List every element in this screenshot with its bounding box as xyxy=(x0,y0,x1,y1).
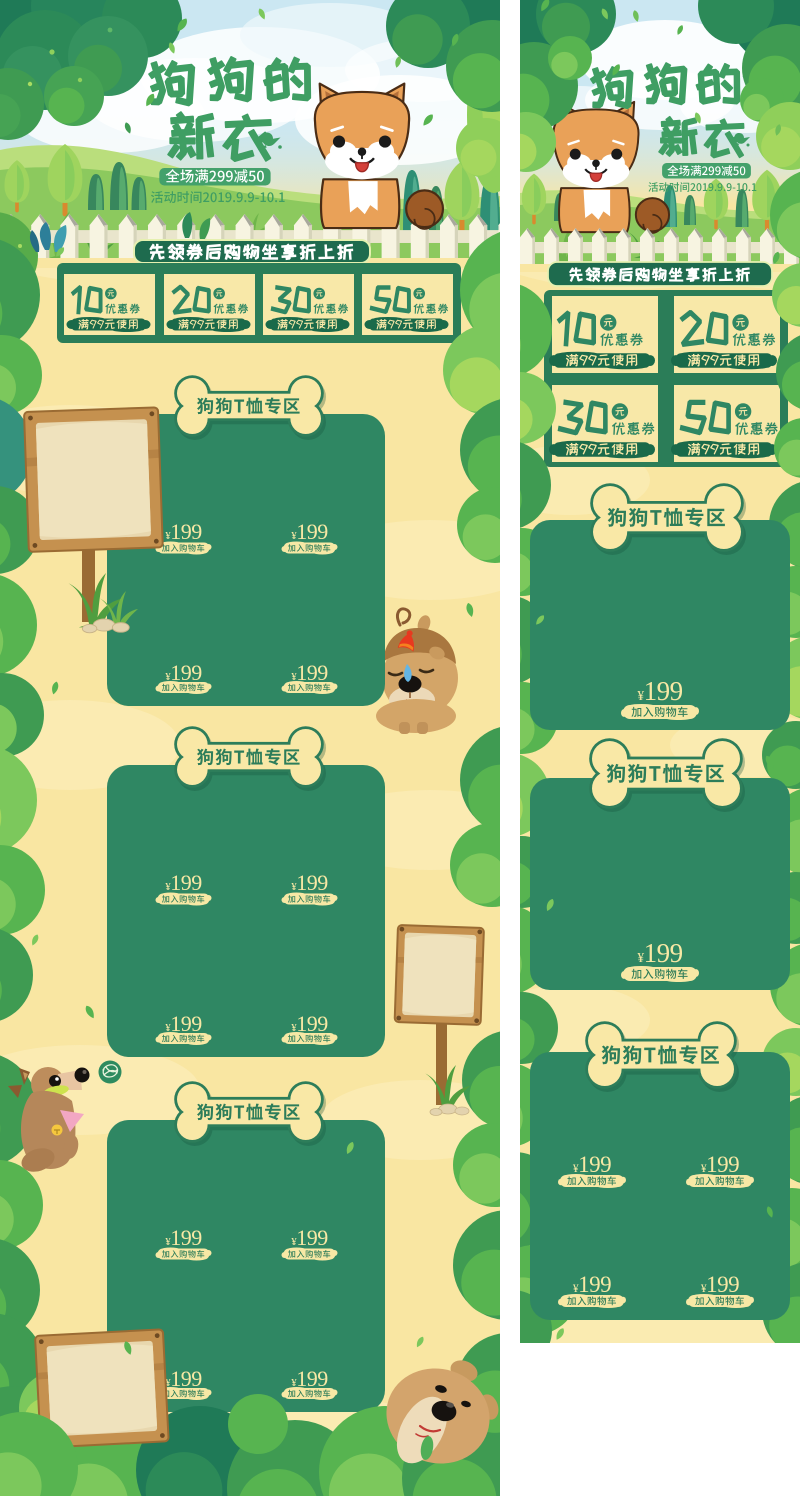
svg-text:¥199: ¥199 xyxy=(291,519,328,544)
svg-text:¥199: ¥199 xyxy=(165,1225,202,1250)
svg-text:¥199: ¥199 xyxy=(701,1272,739,1297)
svg-text:¥199: ¥199 xyxy=(637,938,682,968)
svg-text:¥199: ¥199 xyxy=(165,870,202,895)
svg-text:¥199: ¥199 xyxy=(573,1272,611,1297)
svg-text:¥199: ¥199 xyxy=(573,1152,611,1177)
svg-text:¥199: ¥199 xyxy=(291,870,328,895)
svg-text:¥199: ¥199 xyxy=(165,519,202,544)
svg-text:¥199: ¥199 xyxy=(291,1225,328,1250)
svg-text:¥199: ¥199 xyxy=(637,676,682,706)
svg-text:¥199: ¥199 xyxy=(701,1152,739,1177)
